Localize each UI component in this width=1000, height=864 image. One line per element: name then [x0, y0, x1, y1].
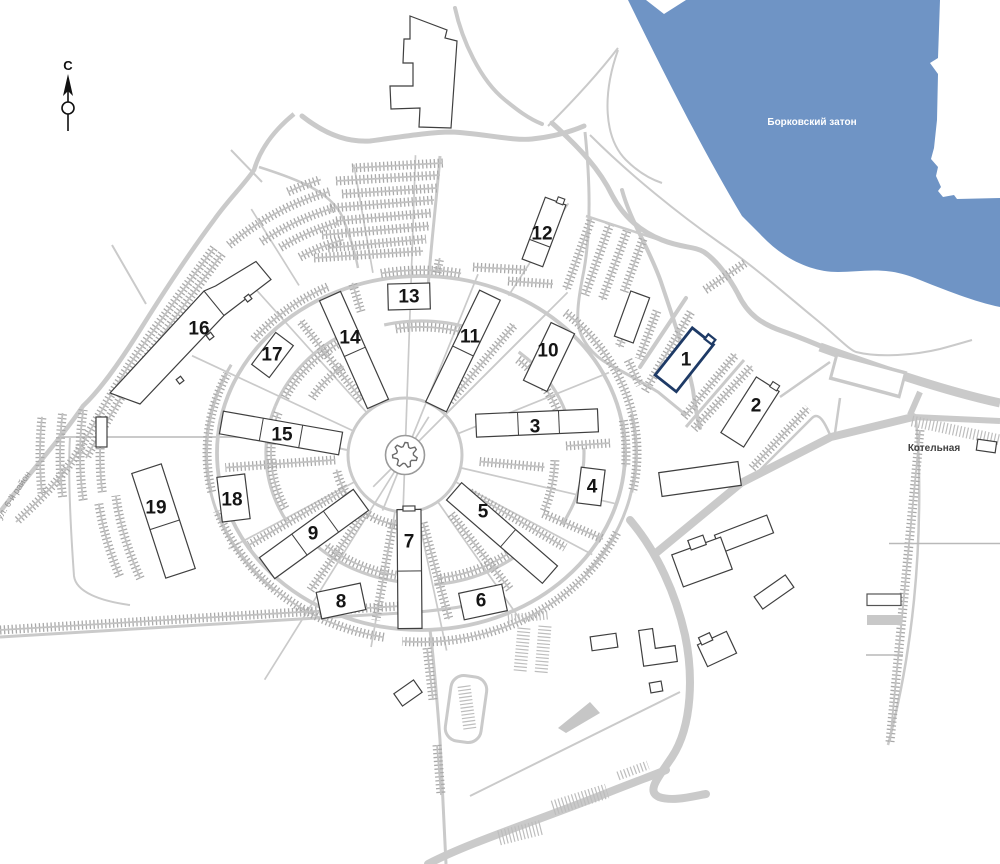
svg-text:17: 17	[261, 345, 282, 366]
svg-text:8: 8	[336, 592, 347, 613]
svg-text:4: 4	[587, 477, 598, 498]
svg-text:1: 1	[681, 350, 692, 371]
svg-text:18: 18	[221, 490, 242, 511]
svg-text:3: 3	[530, 417, 541, 438]
svg-text:14: 14	[339, 328, 361, 349]
svg-text:Борковский затон: Борковский затон	[767, 117, 856, 128]
svg-text:7: 7	[404, 532, 415, 553]
svg-text:10: 10	[537, 341, 558, 362]
svg-text:11: 11	[460, 327, 481, 348]
svg-text:5: 5	[478, 502, 489, 523]
svg-text:19: 19	[145, 498, 166, 519]
svg-text:15: 15	[271, 425, 293, 446]
svg-text:6: 6	[476, 591, 487, 612]
svg-text:С: С	[63, 58, 73, 73]
svg-text:13: 13	[398, 287, 419, 308]
svg-text:9: 9	[308, 524, 319, 545]
svg-text:2: 2	[751, 396, 762, 417]
svg-text:16: 16	[188, 319, 209, 340]
svg-text:Котельная: Котельная	[908, 443, 961, 454]
svg-text:12: 12	[531, 224, 552, 245]
